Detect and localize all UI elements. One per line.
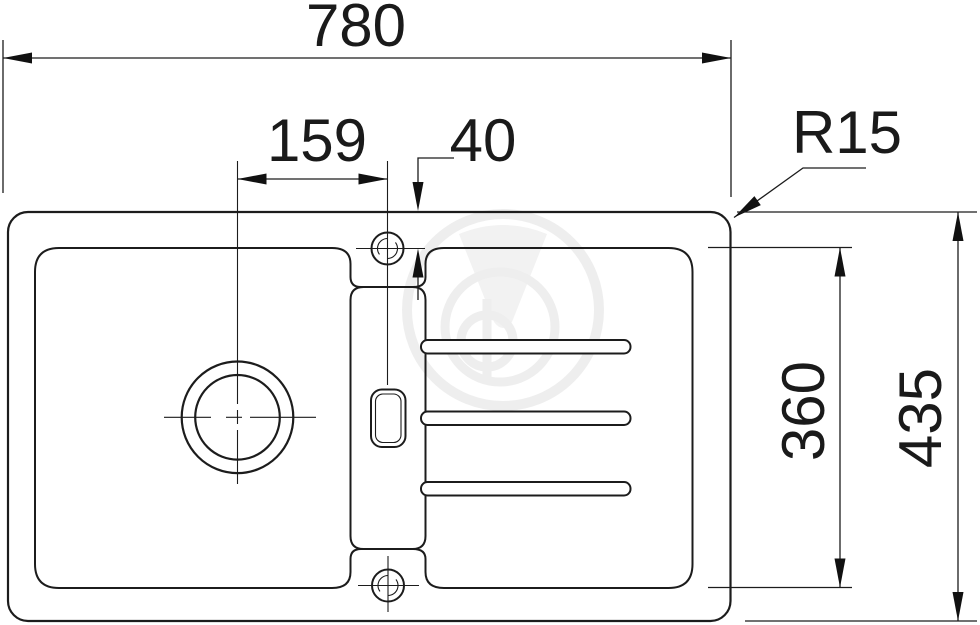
drainer-groove-3 <box>421 482 631 496</box>
drainer-groove-2 <box>421 412 631 426</box>
overflow-hole <box>371 390 406 448</box>
dim-label-360: 360 <box>770 361 837 461</box>
arrowhead-up-icon <box>835 248 846 277</box>
dim-label-435: 435 <box>887 368 954 468</box>
dim-label-159: 159 <box>267 107 367 174</box>
arrowhead-left-icon <box>238 174 267 185</box>
drainer-groove-1 <box>421 340 631 354</box>
arrowhead-leader-icon <box>734 196 761 217</box>
overflow-inner-rect <box>376 394 402 443</box>
arrowhead-up-icon <box>953 212 964 241</box>
leader-line-40 <box>418 158 454 197</box>
arrowhead-right-icon <box>359 174 388 185</box>
dim-label-40: 40 <box>450 107 517 174</box>
tap-hole-bottom <box>358 556 419 612</box>
dimension-corner-radius: R15 <box>734 99 902 218</box>
arrowhead-down-icon <box>835 559 846 588</box>
leader-line-r15 <box>734 168 866 218</box>
sink-dimension-drawing: 780 159 40 R15 <box>0 0 980 625</box>
arrowhead-right-icon <box>702 53 731 64</box>
arrowhead-down-icon <box>953 592 964 621</box>
dim-label-780: 780 <box>306 0 406 59</box>
drain-hole <box>164 161 316 484</box>
arrowhead-left-icon <box>3 53 32 64</box>
arrowhead-down-icon <box>413 182 424 211</box>
watermark-logo <box>407 214 599 406</box>
drainer-grooves <box>421 340 631 496</box>
dimension-drain-to-tap: 159 <box>238 107 388 185</box>
drain-centerlines <box>164 161 316 484</box>
technical-drawing-canvas: 780 159 40 R15 <box>0 0 980 625</box>
dim-label-r15: R15 <box>792 99 902 166</box>
